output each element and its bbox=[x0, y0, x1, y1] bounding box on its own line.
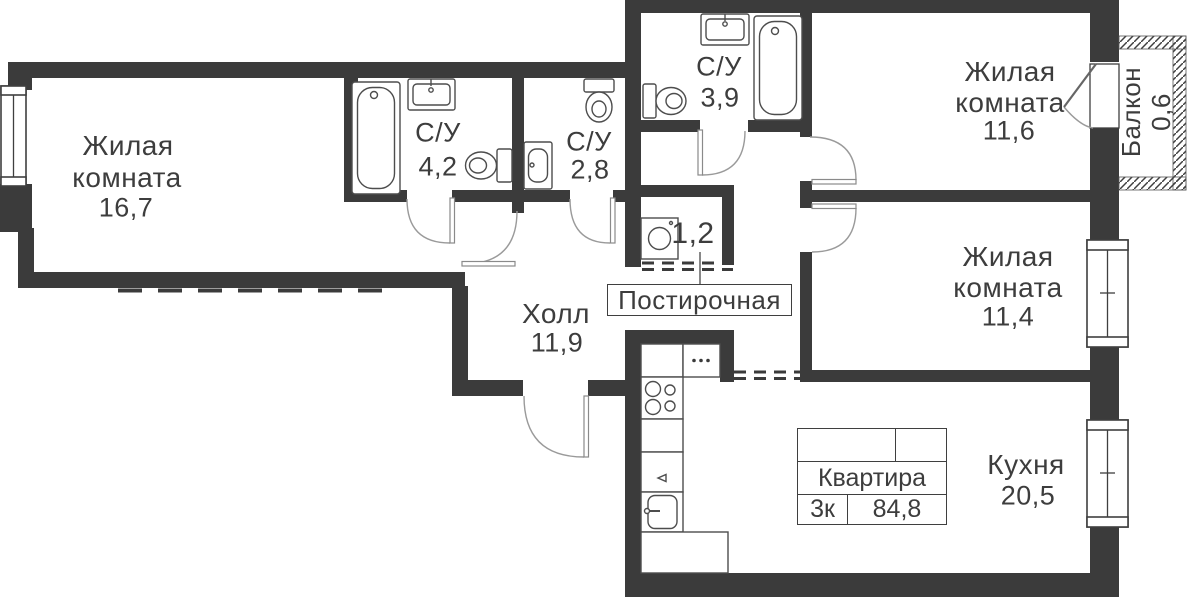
door-leaf-bath1 bbox=[450, 198, 455, 243]
floor-plan: Жилая комната 16,7 С/У 4,2 С/У 2,8 С/У 3… bbox=[0, 0, 1188, 600]
room-area-bath2: 2,8 bbox=[570, 157, 609, 184]
laundry-callout: Постирочная bbox=[607, 284, 792, 316]
sink-icon bbox=[701, 14, 749, 45]
balcony-name: Балкон bbox=[1116, 67, 1146, 157]
door-leaf-entrance bbox=[584, 396, 589, 457]
summary-row-empty bbox=[798, 429, 946, 462]
room-label-living3: комната bbox=[953, 274, 1062, 302]
window-living3 bbox=[1087, 240, 1128, 347]
door-leaf-living3 bbox=[812, 204, 856, 209]
kitchen-sink-icon bbox=[641, 492, 683, 532]
room-area-living1: 16,7 bbox=[99, 195, 154, 222]
kitchen-counter bbox=[641, 419, 683, 452]
door-arc-bath2 bbox=[570, 199, 610, 243]
kitchen-unit-dots bbox=[683, 344, 720, 377]
summary-cell-empty bbox=[896, 429, 946, 461]
window-living1 bbox=[1, 86, 26, 186]
kitchen-counter bbox=[641, 344, 683, 377]
toilet-icon bbox=[466, 149, 513, 182]
room-label-hall: Холл bbox=[522, 300, 590, 328]
window-kitchen bbox=[1087, 420, 1128, 527]
kitchen-counter bbox=[641, 532, 728, 573]
door-arc-balcony bbox=[1064, 107, 1093, 128]
room-label-living1: Жилая bbox=[82, 132, 173, 160]
sink-icon bbox=[524, 142, 552, 189]
door-arc-living3 bbox=[812, 208, 856, 252]
room-label-living3: Жилая bbox=[962, 243, 1053, 271]
apartment-summary-table: Квартира 3к 84,8 bbox=[797, 428, 947, 525]
toilet-icon bbox=[584, 79, 614, 122]
door-leaf-bath3 bbox=[698, 130, 703, 175]
balcony-door-window bbox=[1090, 64, 1119, 128]
balcony-area: 0,6 bbox=[1146, 93, 1176, 131]
door-leaf-hall-swing bbox=[462, 262, 515, 267]
toilet-icon bbox=[643, 84, 686, 118]
room-area-hall: 11,9 bbox=[531, 330, 584, 357]
room-area-living3: 11,4 bbox=[982, 304, 1035, 331]
summary-row-values: 3к 84,8 bbox=[798, 495, 946, 524]
door-arc-bath1 bbox=[407, 199, 450, 243]
room-label-balcony: Балкон 0,6 bbox=[1116, 37, 1176, 187]
summary-cell-empty bbox=[798, 429, 896, 461]
summary-title: Квартира bbox=[798, 462, 946, 495]
door-arc-living2 bbox=[810, 137, 856, 180]
laundry-callout-text: Постирочная bbox=[618, 285, 781, 316]
bathtub-icon bbox=[352, 82, 400, 194]
dishwasher-icon bbox=[641, 452, 683, 492]
room-area-laundry: 1,2 bbox=[671, 219, 714, 249]
room-label-bath3: С/У bbox=[696, 54, 742, 81]
stove-icon bbox=[641, 377, 683, 419]
summary-rooms-count: 3к bbox=[798, 495, 848, 524]
room-label-bath1: С/У bbox=[415, 120, 461, 147]
room-area-bath1: 4,2 bbox=[418, 154, 457, 181]
room-area-kitchen: 20,5 bbox=[1001, 483, 1056, 510]
summary-total-area: 84,8 bbox=[848, 495, 946, 524]
door-arc-hall-swing bbox=[464, 211, 517, 264]
sink-icon bbox=[408, 79, 455, 110]
bathtub-icon bbox=[754, 16, 802, 120]
room-area-living2: 11,6 bbox=[983, 118, 1036, 145]
door-leaf-living2 bbox=[812, 180, 856, 185]
room-label-living1: комната bbox=[72, 164, 181, 192]
room-area-bath3: 3,9 bbox=[700, 85, 739, 112]
room-label-living2: комната bbox=[955, 89, 1064, 117]
room-label-bath2: С/У bbox=[566, 129, 612, 156]
door-arc-entrance bbox=[524, 396, 584, 457]
room-label-living2: Жилая bbox=[964, 58, 1055, 86]
door-leaf-bath2 bbox=[611, 198, 616, 243]
door-arc-bath3 bbox=[702, 131, 745, 175]
room-label-kitchen: Кухня bbox=[987, 451, 1064, 479]
